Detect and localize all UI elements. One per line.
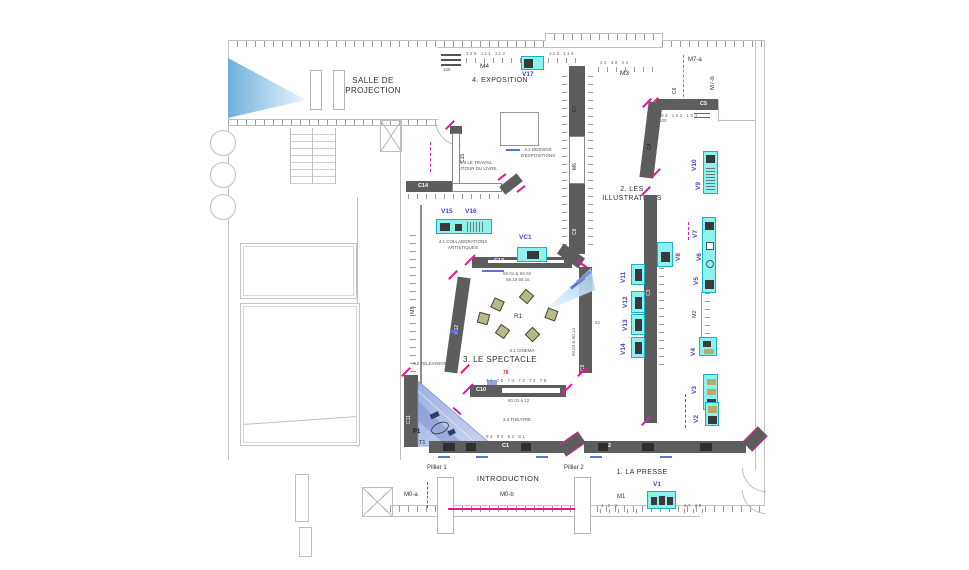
outline-step-jog	[545, 33, 546, 41]
case-item	[705, 280, 714, 289]
pink-dashed-line	[688, 222, 690, 240]
column-arc	[210, 162, 236, 188]
m4-number: 105	[443, 68, 451, 73]
pillar-1	[437, 477, 454, 534]
wall-door-block	[642, 443, 654, 451]
pink-dashed-line	[685, 394, 687, 428]
m4-frame-numbers-right: 113 114	[549, 51, 575, 56]
case-item	[440, 223, 450, 231]
wall-c5	[656, 99, 718, 110]
vitrine-case-v4	[699, 337, 717, 356]
red-number-c10: 78	[503, 370, 509, 376]
outline-inner-top	[437, 47, 663, 48]
m1-frame-ticks	[684, 509, 706, 513]
case-item	[707, 389, 716, 395]
wall-label-c6: C6	[673, 78, 681, 94]
projection-beam-cone	[228, 57, 308, 119]
vitrine-label-v14: V14	[620, 337, 629, 355]
column-arc	[210, 130, 236, 156]
m4-frame-ticks	[548, 58, 576, 63]
pedestal-box	[500, 112, 539, 146]
case-item	[667, 497, 673, 505]
marker-p1: P1	[413, 429, 420, 435]
wall-door-block	[521, 443, 531, 451]
vitrine-case-v1	[647, 491, 676, 509]
wall-label-c1: C1	[502, 444, 509, 450]
zone-title-illustrations: 2. LES ILLUSTRATIONS	[594, 186, 670, 204]
vitrine-label-v1: V1	[653, 481, 661, 488]
blue-mark	[476, 456, 488, 458]
small-pier	[299, 527, 312, 557]
case-item	[706, 155, 715, 163]
pink-note-line	[694, 113, 710, 114]
case-item	[467, 222, 484, 232]
vitrine-case-v5-v6-v7	[702, 217, 716, 293]
marker-t1: T1	[419, 441, 425, 447]
wall-label-c14: C14	[418, 184, 428, 190]
case-item	[707, 379, 716, 385]
partition-line	[400, 120, 401, 460]
zone-title-projection: SALLE DE PROJECTION	[335, 76, 411, 96]
pink-wall-cap	[497, 173, 506, 181]
wall-label-m7b: M7-b	[710, 64, 718, 90]
case-item	[703, 341, 711, 347]
wall-door-block	[598, 443, 608, 451]
pillar-2	[574, 477, 591, 534]
artwork-numbers: 69.01 & 69.02	[503, 271, 531, 276]
wall-label-m0b: M0-b	[500, 492, 514, 498]
vitrine-label-v3: V3	[691, 379, 700, 394]
blue-mark	[590, 456, 602, 458]
case-item	[708, 416, 717, 424]
wall-label-m6: M6	[573, 150, 582, 170]
outline-top-right-ticks	[662, 41, 762, 47]
blue-mark	[450, 330, 458, 333]
partition-line	[718, 100, 719, 122]
cinema-seat	[525, 327, 541, 343]
back-room-small	[240, 243, 357, 299]
section-label-32: 3.2 TELEVISION	[406, 361, 454, 367]
case-item	[527, 251, 539, 259]
frame-ticks	[588, 75, 593, 245]
wall-label-m1: M1	[617, 494, 625, 500]
wall-door-block	[700, 443, 712, 451]
c1-frame-numbers: 84 83 82 81	[486, 434, 526, 439]
case-item	[524, 59, 533, 68]
frame-ticks	[562, 75, 567, 245]
wall-c3	[644, 195, 657, 423]
wall-c14	[406, 181, 452, 192]
zone-title-introduction: INTRODUCTION	[468, 474, 548, 483]
wall-door-block	[443, 443, 455, 451]
blue-mark	[536, 456, 548, 458]
vitrine-case-v11	[631, 264, 645, 285]
pink-wall-cap	[516, 185, 525, 193]
case-item	[635, 269, 642, 281]
vitrine-case-v9-v10	[703, 151, 718, 194]
case-item	[661, 252, 670, 262]
wall-label-m3: M3	[620, 71, 629, 78]
shaft-crossed-box	[362, 487, 393, 517]
artwork-numbers: 69.15 69.16	[506, 277, 530, 282]
m4-hatch-bars	[441, 53, 461, 66]
vitrine-label-v4: V4	[690, 341, 699, 356]
staircase-rail	[312, 128, 313, 184]
salle-south-wall	[228, 119, 438, 126]
case-item	[706, 260, 714, 268]
m1-frame-numbers-right: 27 28	[684, 503, 703, 508]
vitrine-case-vc1	[517, 247, 547, 262]
wall-label-c7: C7	[573, 92, 582, 112]
vitrine-label-v13: V13	[622, 314, 631, 331]
case-item	[455, 224, 462, 231]
wall-label-c4: C4	[648, 132, 657, 150]
case-item	[704, 349, 714, 354]
vitrine-label-v12: V12	[622, 291, 631, 308]
wall-label-c15: C15	[461, 141, 470, 163]
marker-r1: R1	[514, 314, 522, 321]
case-item	[708, 406, 717, 413]
case-item	[706, 242, 714, 250]
frame-ticks	[659, 255, 664, 365]
outline-right-inner	[755, 40, 756, 470]
wall-label-c5: C5	[700, 102, 707, 108]
vitrine-label-v7: V7	[692, 222, 701, 238]
case-item	[635, 297, 642, 309]
vitrine-label-v16: V16	[465, 208, 477, 215]
pink-dashed-line	[430, 142, 432, 172]
cinema-seat	[477, 312, 490, 325]
wall-m2	[701, 292, 702, 342]
floor-plan-canvas: SALLE DE PROJECTION 105 125 111 112 M4 V…	[0, 0, 969, 570]
staircase	[290, 128, 336, 184]
m1-frame-numbers: 1 2 3	[601, 503, 619, 508]
wall-label-c3: C3	[647, 278, 656, 296]
vitrine-case-v13	[631, 314, 645, 335]
tick-number-62: 62	[595, 320, 600, 325]
zone-title-spectacle: 3. LE SPECTACLE	[458, 355, 542, 365]
wall-label-c11: C11	[407, 406, 416, 424]
case-item	[659, 496, 665, 505]
cinema-seat	[519, 289, 534, 304]
case-item	[635, 342, 642, 354]
vitrine-label-vc1: VC1	[519, 234, 532, 241]
frame-ticks	[705, 292, 710, 342]
vitrine-label-v2: V2	[693, 408, 702, 423]
cinema-seat	[495, 324, 510, 339]
vitrine-label-v5: V5	[693, 270, 702, 285]
wall-label-m0a: M0-a	[404, 492, 418, 498]
blue-mark	[660, 456, 672, 458]
section-label-41: 4.1 COLLABORATIONS ARTISTIQUES	[430, 239, 496, 251]
marker-pillier1: Pillier 1	[427, 465, 447, 471]
section-label-42: 4.2 DESSINS D'EXPOSITIONS	[510, 147, 566, 159]
back-room-large	[240, 303, 360, 446]
m3-frame-numbers: 42 43 44	[600, 60, 630, 65]
section-label-31: 3.1 CINEMA	[500, 348, 544, 354]
wall-light-segment	[452, 183, 502, 192]
pink-note-line	[694, 117, 710, 118]
vitrine-case-v12	[631, 291, 645, 313]
wall-c15	[452, 133, 460, 184]
vitrine-label-v8: V8	[675, 246, 684, 261]
artwork-numbers-c10: 60.01 à 12	[508, 398, 529, 403]
cinema-seat	[544, 307, 558, 321]
small-pier	[295, 474, 309, 522]
column-arc	[210, 194, 236, 220]
outline-top-step-ticks	[545, 34, 663, 40]
frame-ticks	[408, 194, 504, 199]
case-item	[705, 222, 714, 230]
blue-mark	[482, 270, 504, 272]
vitrine-case-v14	[631, 337, 645, 358]
vitrine-case-v17	[521, 56, 544, 70]
stage-platform	[417, 379, 495, 448]
blue-mark	[438, 456, 450, 458]
door-swing-arc	[742, 468, 766, 492]
wall-label-c8: C8	[573, 215, 582, 235]
m4-frame-numbers: 125 111 112	[466, 51, 507, 56]
vitrine-label-v10: V10	[691, 153, 700, 171]
vitrine-case-v15-v16	[436, 219, 492, 234]
pink-wall-cap	[460, 364, 470, 374]
wall-label-m7a: M7-a	[688, 57, 702, 63]
cinema-seat	[490, 297, 505, 312]
case-item	[706, 168, 715, 190]
vitrine-case-v8	[657, 242, 673, 267]
bench	[310, 70, 322, 110]
m1-frame-ticks	[600, 509, 638, 513]
case-item	[635, 319, 642, 331]
case-item	[651, 497, 657, 505]
wall-label-m4: M4	[480, 64, 489, 71]
vitrine-label-v15: V15	[441, 208, 453, 215]
shaft-crossed-box	[380, 120, 402, 152]
partition-line	[718, 120, 756, 121]
marker-pillier2: Pillier 2	[564, 465, 584, 471]
section-label-33: 3.3 THEATRE	[495, 417, 539, 423]
zone-title-exposition: 4. EXPOSITION	[458, 77, 542, 86]
vitrine-label-v11: V11	[620, 266, 629, 283]
wall-c6-dashed	[683, 55, 684, 97]
vitrine-case-v2	[705, 402, 719, 426]
wall-label-m2: M2	[693, 302, 701, 318]
wall-label-c13: C13	[494, 259, 504, 265]
pink-dashed-line	[427, 482, 429, 508]
zone-title-presse: 1. LA PRESSE	[610, 469, 674, 478]
wall-c10-slot	[502, 388, 560, 393]
wall-door-block	[466, 443, 476, 451]
wall-m0b-pink-line	[448, 508, 575, 510]
